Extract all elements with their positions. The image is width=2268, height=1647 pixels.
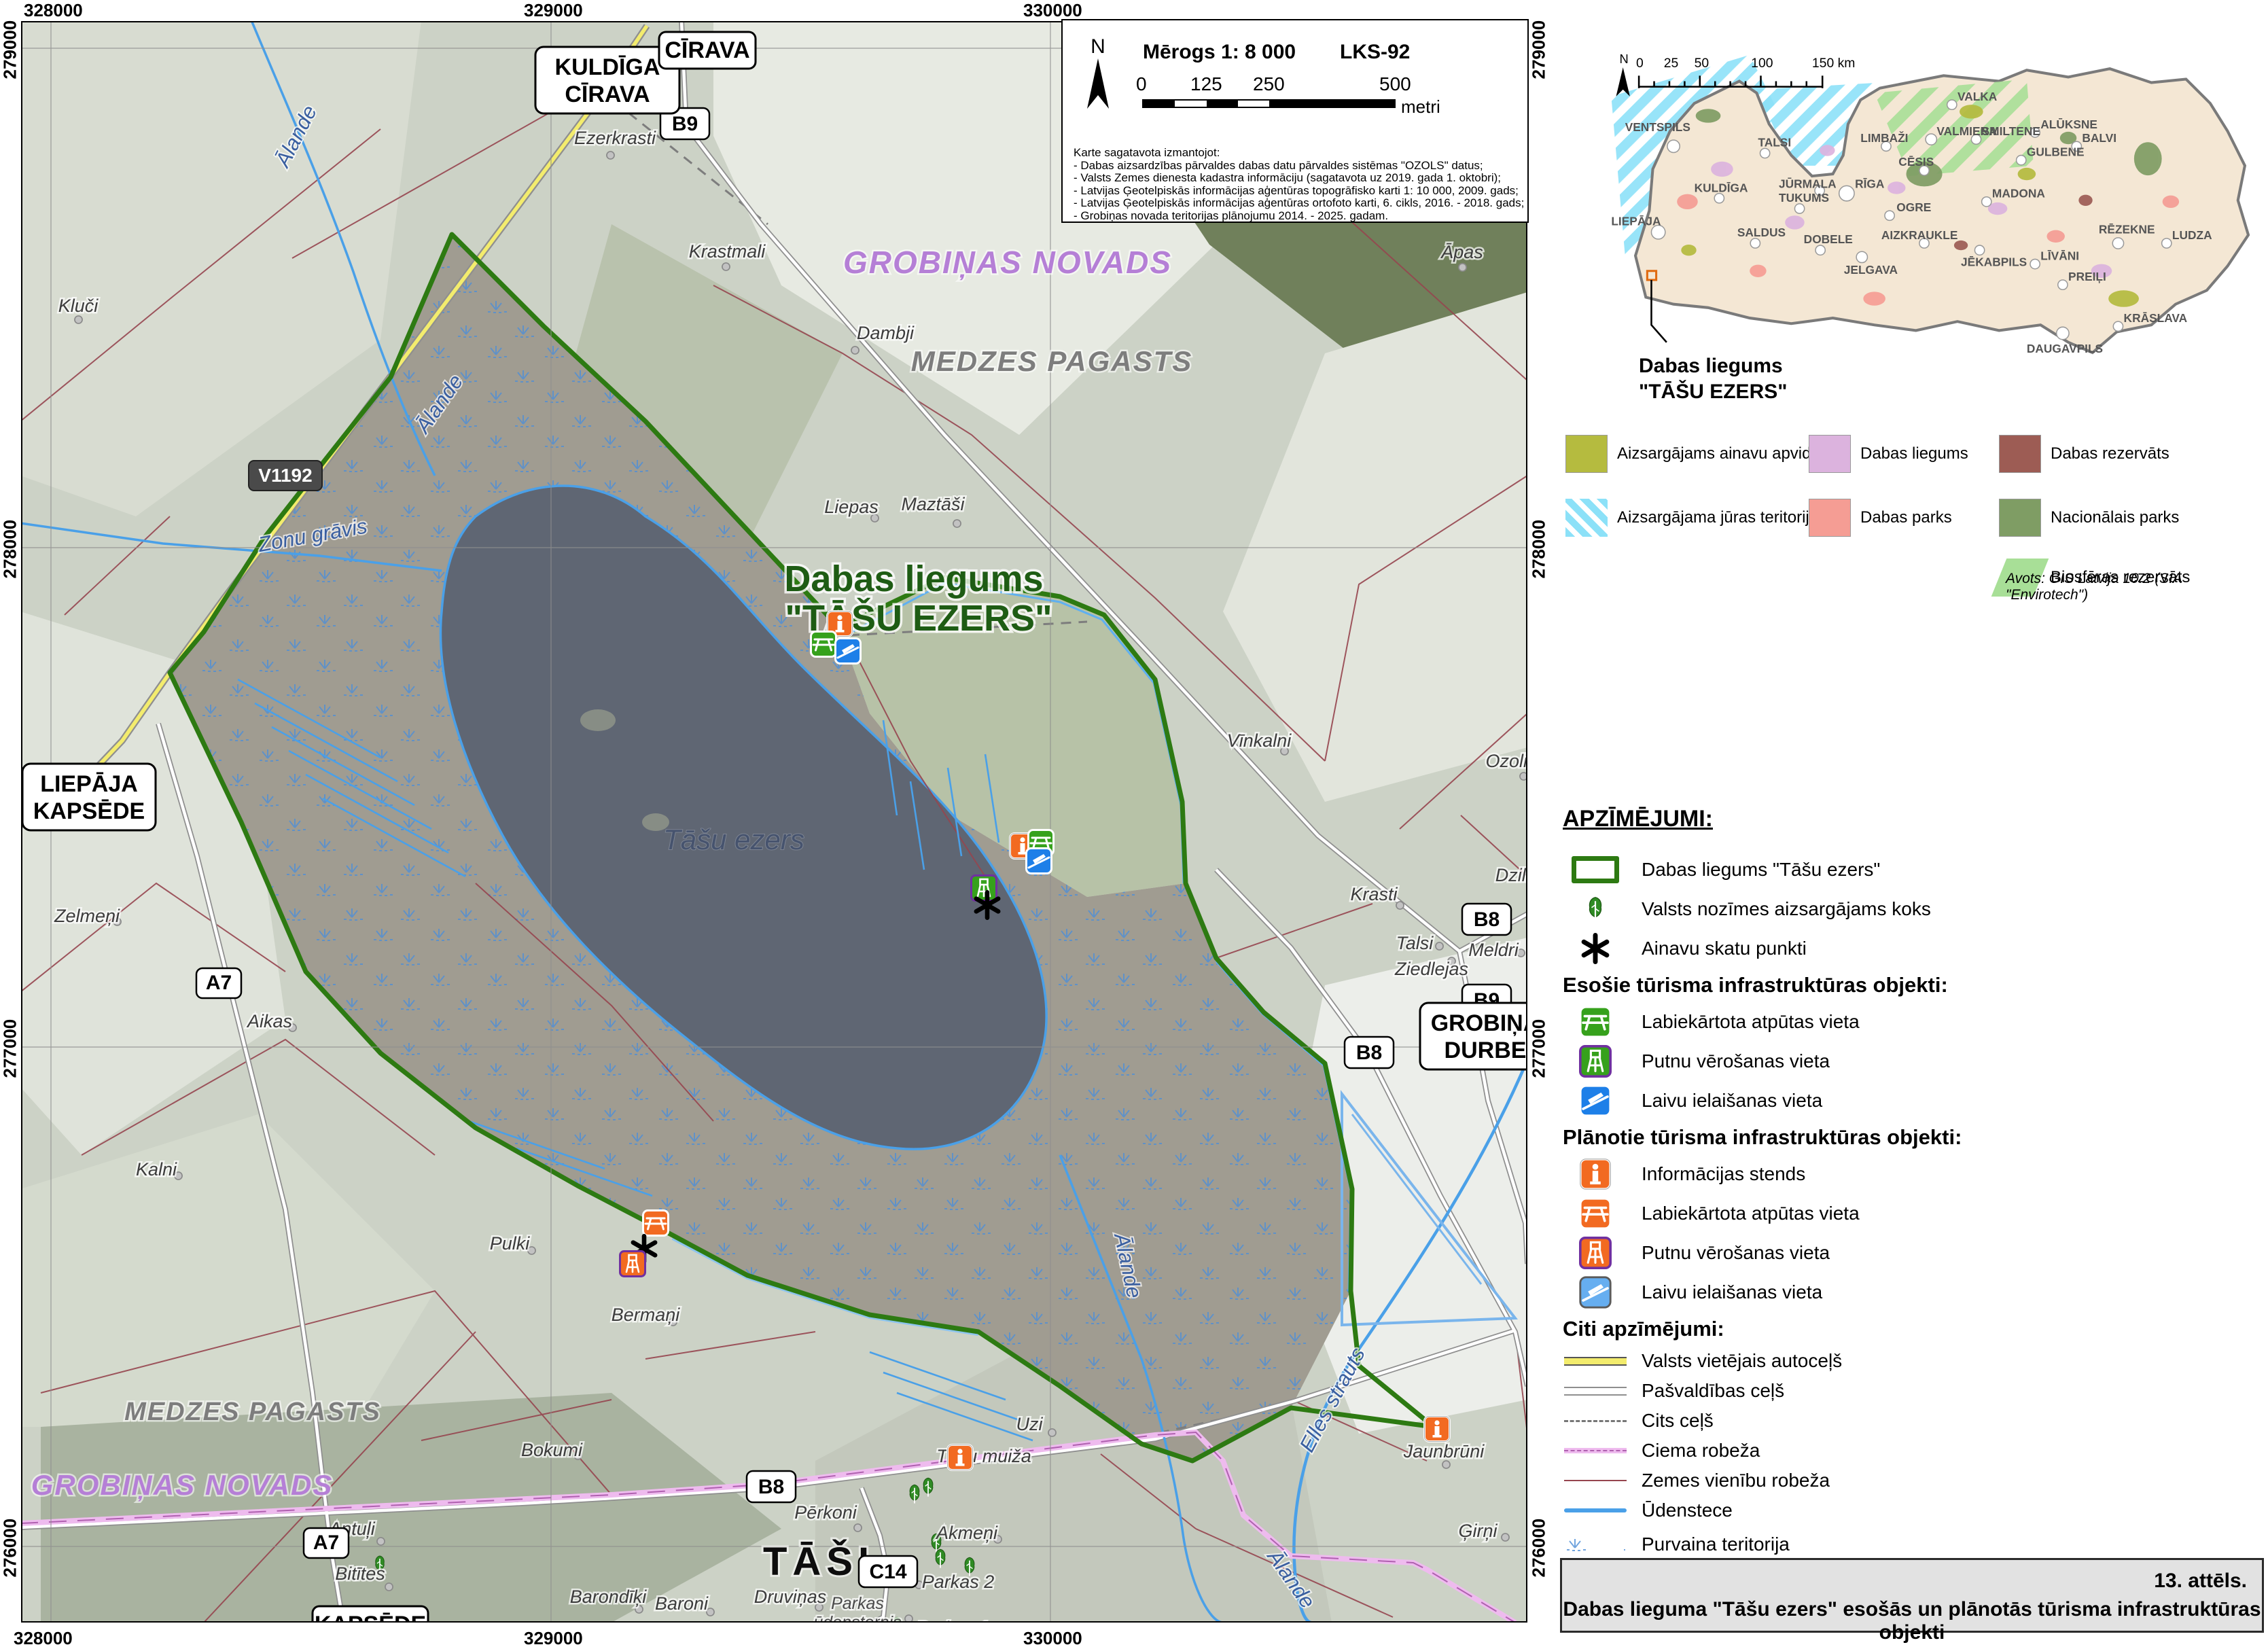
svg-text:Jaunbrūni: Jaunbrūni: [1403, 1441, 1485, 1462]
legend-item-other-road: Cits ceļš: [1563, 1406, 2249, 1436]
svg-text:ALŪKSNE: ALŪKSNE: [2040, 118, 2097, 131]
figure-title: Dabas lieguma "Tāšu ezers" esošās un plā…: [1562, 1598, 2262, 1644]
legend-item-planned-tower: Putnu vērošanas vieta: [1563, 1233, 2249, 1273]
svg-text:SALDUS: SALDUS: [1737, 226, 1786, 239]
other-road-swatch: [1564, 1420, 1627, 1422]
boat-launch-icon: [1579, 1084, 1612, 1117]
road-badge-b8: B8: [1345, 1037, 1394, 1068]
svg-text:Kalni: Kalni: [136, 1159, 177, 1180]
svg-text:LUDZA: LUDZA: [2172, 228, 2212, 242]
axis-label-top: 330000: [1023, 0, 1078, 21]
svg-text:KAPSĒDE: KAPSĒDE: [33, 798, 145, 824]
svg-text:0: 0: [1636, 56, 1644, 71]
inset-source: Avots: GIS Latvija 10.2 (SIA "Envirotech…: [2006, 571, 2268, 603]
planned-info-icon: [948, 1445, 973, 1470]
svg-text:CĪRAVA: CĪRAVA: [565, 82, 650, 107]
legend-item-municipal-road: Pašvaldības ceļš: [1563, 1376, 2249, 1406]
svg-text:100: 100: [1751, 56, 1773, 71]
svg-text:Dzilnas: Dzilnas: [1495, 865, 1529, 885]
scale-tick: 0: [1136, 73, 1147, 95]
legend-item-village-border: Ciema robeža: [1563, 1436, 2249, 1466]
svg-text:PREIĻI: PREIĻI: [2068, 270, 2106, 283]
legend-item-existing-boat: Laivu ielaišanas vieta: [1563, 1081, 2249, 1120]
planned-picnic-icon: [643, 1211, 669, 1236]
main-map: Ālande Ālande Ālande Ālande Zonu grāvis …: [20, 20, 1529, 1624]
sign-cirava: CĪRAVA: [659, 32, 756, 69]
svg-text:LIEPĀJA: LIEPĀJA: [40, 771, 138, 797]
map-sheet: 328000 329000 330000 328000 329000 33000…: [0, 0, 2268, 1647]
planned-boat-icon: [1579, 1276, 1612, 1309]
latvia-inset-map: VENTSPILSTALSI KULDĪGALIEPĀJA SALDUSDOBE…: [1583, 27, 2263, 387]
svg-text:GULBENE: GULBENE: [2027, 145, 2085, 159]
scale-tick: 250: [1253, 73, 1285, 95]
axis-label-right: 277000: [1529, 1020, 1550, 1078]
scale-unit: metri: [1401, 96, 1440, 118]
state-road-swatch: [1564, 1357, 1627, 1366]
legend-item-existing-tower: Putnu vērošanas vieta: [1563, 1042, 2249, 1081]
municipal-road-swatch: [1564, 1387, 1627, 1396]
scale-bar: [1142, 99, 1396, 108]
svg-text:BALVI: BALVI: [2082, 131, 2116, 145]
svg-text:A7: A7: [206, 972, 232, 994]
svg-text:SMILTENE: SMILTENE: [1982, 124, 2040, 138]
svg-text:GROBIŅA: GROBIŅA: [1431, 1010, 1529, 1036]
axis-label-bottom: 329000: [524, 1628, 578, 1647]
svg-text:Pērkoni: Pērkoni: [794, 1502, 857, 1523]
svg-text:Kluči: Kluči: [58, 296, 99, 316]
axis-label-right: 278000: [1529, 520, 1550, 579]
area-label-pagasts: MEDZES PAGASTS: [911, 345, 1193, 377]
inset-callout: Dabas liegums "TĀŠU EZERS": [1639, 353, 1883, 405]
svg-text:Krastmali: Krastmali: [689, 241, 766, 262]
crs-label: LKS-92: [1340, 41, 1410, 64]
north-arrow: N: [1078, 35, 1118, 124]
svg-text:Talsi: Talsi: [1396, 933, 1434, 953]
reserve-boundary-swatch: [1572, 856, 1619, 883]
scale-tick: 500: [1379, 73, 1411, 95]
sign-kuldiga-cirava: KULDĪGA CĪRAVA: [535, 47, 679, 113]
svg-text:Pulki: Pulki: [490, 1233, 531, 1254]
picnic-area-icon: [811, 632, 836, 657]
svg-text:B9: B9: [672, 113, 698, 135]
protected-tree-icon: [1585, 896, 1606, 923]
area-label-pagasts: MEDZES PAGASTS: [124, 1398, 381, 1426]
svg-text:Bokumi: Bokumi: [521, 1440, 583, 1460]
sign-liepaja-kapsede: LIEPĀJA KAPSĒDE: [22, 764, 156, 830]
svg-text:LIMBAŽI: LIMBAŽI: [1860, 131, 1908, 145]
legend-item-viewpoint: Ainavu skatu punkti: [1563, 929, 2249, 968]
svg-text:Vīnkalni: Vīnkalni: [1227, 730, 1292, 751]
svg-text:OGRE: OGRE: [1896, 200, 1931, 214]
area-label-novads: GROBIŅAS NOVADS: [31, 1469, 334, 1502]
legend-title: APZĪMĒJUMI:: [1563, 806, 2249, 832]
legend-section-existing: Esošie tūrisma infrastruktūras objekti:: [1563, 968, 2249, 1002]
boat-launch-icon: [836, 639, 861, 664]
axis-label-bottom: 328000: [14, 1628, 68, 1647]
village-label-tasi: TĀŠI: [763, 1540, 874, 1584]
svg-text:JELGAVA: JELGAVA: [1844, 263, 1898, 277]
svg-text:Ozoliejas: Ozoliejas: [1485, 751, 1529, 771]
axis-label-right: 276000: [1529, 1519, 1550, 1578]
planned-tower-icon: [1579, 1237, 1612, 1269]
svg-text:DURBE: DURBE: [1445, 1038, 1527, 1063]
axis-label-right: 279000: [1529, 21, 1550, 79]
svg-text:150 km: 150 km: [1812, 56, 1856, 71]
svg-text:Akmeņi: Akmeņi: [935, 1523, 998, 1543]
svg-text:Ziedlejas: Ziedlejas: [1394, 959, 1468, 979]
legend-item-planned-picnic: Labiekārtota atpūtas vieta: [1563, 1194, 2249, 1233]
village-border-swatch: [1564, 1448, 1627, 1453]
svg-text:B8: B8: [1356, 1042, 1382, 1064]
road-badge-c14: C14: [859, 1556, 917, 1587]
swatch-ainavu-apvidus: [1565, 435, 1608, 473]
svg-text:JŪRMALA: JŪRMALA: [1779, 177, 1837, 190]
svg-text:Baroni: Baroni: [655, 1593, 709, 1614]
svg-text:RĪGA: RĪGA: [1855, 177, 1885, 190]
road-badge-v1192: V1192: [249, 461, 322, 491]
svg-text:KULDĪGA: KULDĪGA: [1695, 181, 1748, 195]
svg-text:VENTSPILS: VENTSPILS: [1625, 120, 1690, 134]
svg-text:25: 25: [1664, 56, 1679, 71]
viewpoint-icon: [1580, 933, 1611, 964]
svg-text:RĒZEKNE: RĒZEKNE: [2099, 223, 2155, 236]
map-sources: Karte sagatavota izmantojot: - Dabas aiz…: [1074, 147, 1524, 222]
planned-tower-icon: [620, 1252, 645, 1277]
svg-text:Āpas: Āpas: [1440, 242, 1483, 262]
legend-item-parcel-border: Zemes vienību robeža: [1563, 1466, 2249, 1495]
swatch-nacionalais-parks: [1999, 499, 2041, 537]
svg-text:N: N: [1620, 52, 1629, 66]
svg-text:Aikas: Aikas: [246, 1011, 292, 1031]
svg-text:50: 50: [1695, 56, 1709, 71]
parcel-border-swatch: [1564, 1480, 1627, 1481]
axis-label-bottom: 330000: [1023, 1628, 1078, 1647]
svg-text:Maztāši: Maztāši: [901, 494, 965, 514]
svg-text:DAUGAVPILS: DAUGAVPILS: [2027, 342, 2103, 355]
scale-tick: 125: [1190, 73, 1222, 95]
svg-text:Parkas 2: Parkas 2: [922, 1572, 995, 1592]
area-label-novads: GROBIŅAS NOVADS: [843, 245, 1172, 281]
legend-item-watercourse: Ūdenstece: [1563, 1495, 2249, 1525]
legend-section-planned: Plānotie tūrisma infrastruktūras objekti…: [1563, 1120, 2249, 1154]
main-map-svg: Ālande Ālande Ālande Ālande Zonu grāvis …: [20, 20, 1529, 1624]
svg-text:Krasti: Krasti: [1350, 884, 1398, 904]
svg-text:TUKUMS: TUKUMS: [1779, 191, 1829, 205]
road-badge-b8: B8: [747, 1471, 796, 1502]
svg-text:VALKA: VALKA: [1957, 90, 1998, 103]
svg-text:Meldri: Meldri: [1468, 940, 1519, 960]
svg-text:Druviņas: Druviņas: [754, 1587, 827, 1607]
planned-picnic-icon: [1579, 1197, 1612, 1230]
svg-text:Bermaņi: Bermaņi: [612, 1305, 681, 1325]
watercourse-swatch: [1564, 1508, 1627, 1512]
svg-text:Liepas: Liepas: [824, 497, 879, 517]
svg-text:B8: B8: [1474, 908, 1500, 931]
marsh-swatch: [1565, 1527, 1625, 1561]
sign-grobina-durbe: GROBIŅA DURBE: [1420, 1003, 1529, 1069]
swatch-juras-teritorija: [1565, 499, 1608, 537]
info-stand-icon: [1579, 1158, 1612, 1190]
svg-text:Parkas: Parkas: [831, 1594, 884, 1613]
axis-label-left: 277000: [0, 1020, 21, 1078]
axis-label-left: 279000: [0, 21, 21, 79]
map-scale-text: Mērogs 1: 8 000: [1143, 41, 1296, 64]
svg-text:TALSI: TALSI: [1758, 135, 1791, 149]
legend-item-planned-boat: Laivu ielaišanas vieta: [1563, 1273, 2249, 1312]
road-badge-b8: B8: [1462, 904, 1511, 935]
swatch-dabas-rezervats: [1999, 435, 2041, 473]
bird-watch-tower-icon: [1579, 1045, 1612, 1078]
svg-text:Bitītes: Bitītes: [335, 1563, 385, 1584]
svg-text:Barondīķi: Barondīķi: [570, 1587, 648, 1607]
boat-launch-icon: [1027, 849, 1052, 874]
svg-text:LĪVĀNI: LĪVĀNI: [2040, 249, 2079, 262]
legend-item-tree: Valsts nozīmes aizsargājams koks: [1563, 889, 2249, 929]
svg-text:KULDĪGA: KULDĪGA: [555, 54, 660, 80]
axis-label-top: 329000: [524, 0, 578, 21]
reserve-title: Dabas liegums "TĀŠU EZERS": [784, 559, 1052, 639]
legend-item-existing-picnic: Labiekārtota atpūtas vieta: [1563, 1002, 2249, 1042]
svg-text:Ezerkrasti: Ezerkrasti: [574, 128, 656, 148]
picnic-area-icon: [1579, 1006, 1612, 1038]
svg-text:Dambji: Dambji: [857, 323, 915, 343]
svg-text:V1192: V1192: [258, 465, 312, 486]
svg-text:Dabas liegums: Dabas liegums: [784, 559, 1043, 599]
planned-info-icon: [1425, 1417, 1450, 1442]
svg-text:KRĀSLAVA: KRĀSLAVA: [2124, 311, 2188, 325]
svg-text:N: N: [1091, 35, 1105, 58]
svg-text:MADONA: MADONA: [1992, 187, 2045, 200]
lake-label: Tāšu ezers: [663, 824, 804, 855]
legend-section-other: Citi apzīmējumi:: [1563, 1312, 2249, 1346]
swatch-dabas-parks: [1809, 499, 1851, 537]
svg-text:LIEPĀJA: LIEPĀJA: [1611, 215, 1661, 228]
svg-text:CĪRAVA: CĪRAVA: [665, 37, 749, 63]
svg-text:DOBELE: DOBELE: [1804, 232, 1853, 246]
svg-text:JĒKABPILS: JĒKABPILS: [1961, 255, 2027, 269]
svg-text:Zelmeņi: Zelmeņi: [54, 906, 120, 926]
axis-label-top: 328000: [24, 0, 78, 21]
legend-item-boundary: Dabas liegums "Tāšu ezers": [1563, 850, 2249, 889]
svg-text:A7: A7: [313, 1531, 339, 1554]
svg-text:Parkas 1: Parkas 1: [917, 1618, 989, 1624]
svg-text:CĒSIS: CĒSIS: [1898, 155, 1934, 169]
road-badge-a7: A7: [304, 1528, 349, 1558]
figure-caption: 13. attēls. Dabas lieguma "Tāšu ezers" e…: [1560, 1558, 2264, 1633]
svg-text:AIZKRAUKLE: AIZKRAUKLE: [1881, 228, 1958, 242]
swatch-dabas-liegums: [1809, 435, 1851, 473]
legend-item-planned-info: Informācijas stends: [1563, 1154, 2249, 1194]
svg-text:B8: B8: [758, 1476, 784, 1498]
figure-number: 13. attēls.: [2154, 1570, 2247, 1593]
legend-item-state-road: Valsts vietējais autoceļš: [1563, 1346, 2249, 1376]
scale-box: N Mērogs 1: 8 000 LKS-92 0 125 250 500 m…: [1061, 19, 1529, 223]
svg-text:Ģirņi: Ģirņi: [1458, 1521, 1498, 1541]
axis-label-left: 276000: [0, 1519, 21, 1578]
road-badge-a7: A7: [196, 968, 241, 998]
svg-text:Uzi: Uzi: [1016, 1414, 1044, 1434]
axis-label-left: 278000: [0, 520, 21, 579]
svg-text:C14: C14: [869, 1561, 906, 1583]
legend-panel: APZĪMĒJUMI: Dabas liegums "Tāšu ezers" V…: [1563, 806, 2249, 1593]
